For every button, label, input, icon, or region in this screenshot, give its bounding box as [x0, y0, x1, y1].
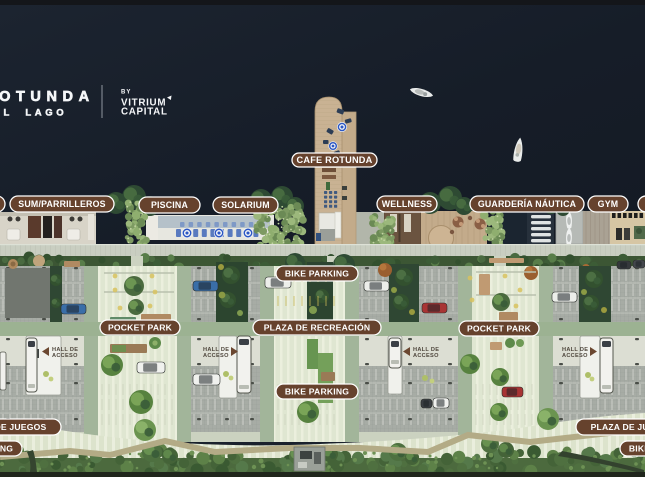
svg-text:PLAZA DE JUEGOS: PLAZA DE JUEGOS: [0, 422, 46, 432]
svg-text:ACCESO: ACCESO: [562, 353, 588, 359]
svg-text:WELLNESS: WELLNESS: [382, 199, 432, 209]
svg-text:SOLARIUM: SOLARIUM: [221, 200, 270, 210]
svg-text:BIKE PARKING: BIKE PARKING: [629, 444, 645, 454]
svg-text:ROTUNDA: ROTUNDA: [0, 89, 95, 105]
svg-text:BIKE PARKING: BIKE PARKING: [0, 444, 13, 454]
svg-text:AL LAGO: AL LAGO: [0, 108, 67, 119]
svg-text:PLAZA DE RECREACIÓN: PLAZA DE RECREACIÓN: [264, 322, 371, 333]
svg-text:BY: BY: [121, 90, 131, 96]
svg-text:ACCESO: ACCESO: [52, 353, 78, 359]
svg-text:GYM: GYM: [598, 199, 619, 209]
svg-text:CAPITAL: CAPITAL: [121, 107, 168, 118]
svg-text:PISCINA: PISCINA: [151, 200, 189, 210]
svg-text:BIKE PARKING: BIKE PARKING: [285, 387, 349, 397]
svg-text:CAFE ROTUNDA: CAFE ROTUNDA: [297, 155, 373, 165]
svg-text:GUARDERÍA NÁUTICA: GUARDERÍA NÁUTICA: [478, 199, 577, 209]
svg-text:BIKE PARKING: BIKE PARKING: [285, 269, 349, 279]
svg-text:POCKET PARK: POCKET PARK: [467, 324, 532, 334]
svg-text:POCKET PARK: POCKET PARK: [108, 323, 173, 333]
svg-text:ACCESO: ACCESO: [413, 353, 439, 359]
svg-text:ACCESO: ACCESO: [203, 353, 229, 359]
svg-text:SUM/PARRILLEROS: SUM/PARRILLEROS: [18, 199, 105, 209]
svg-text:PLAZA DE JUEGOS: PLAZA DE JUEGOS: [591, 422, 645, 432]
